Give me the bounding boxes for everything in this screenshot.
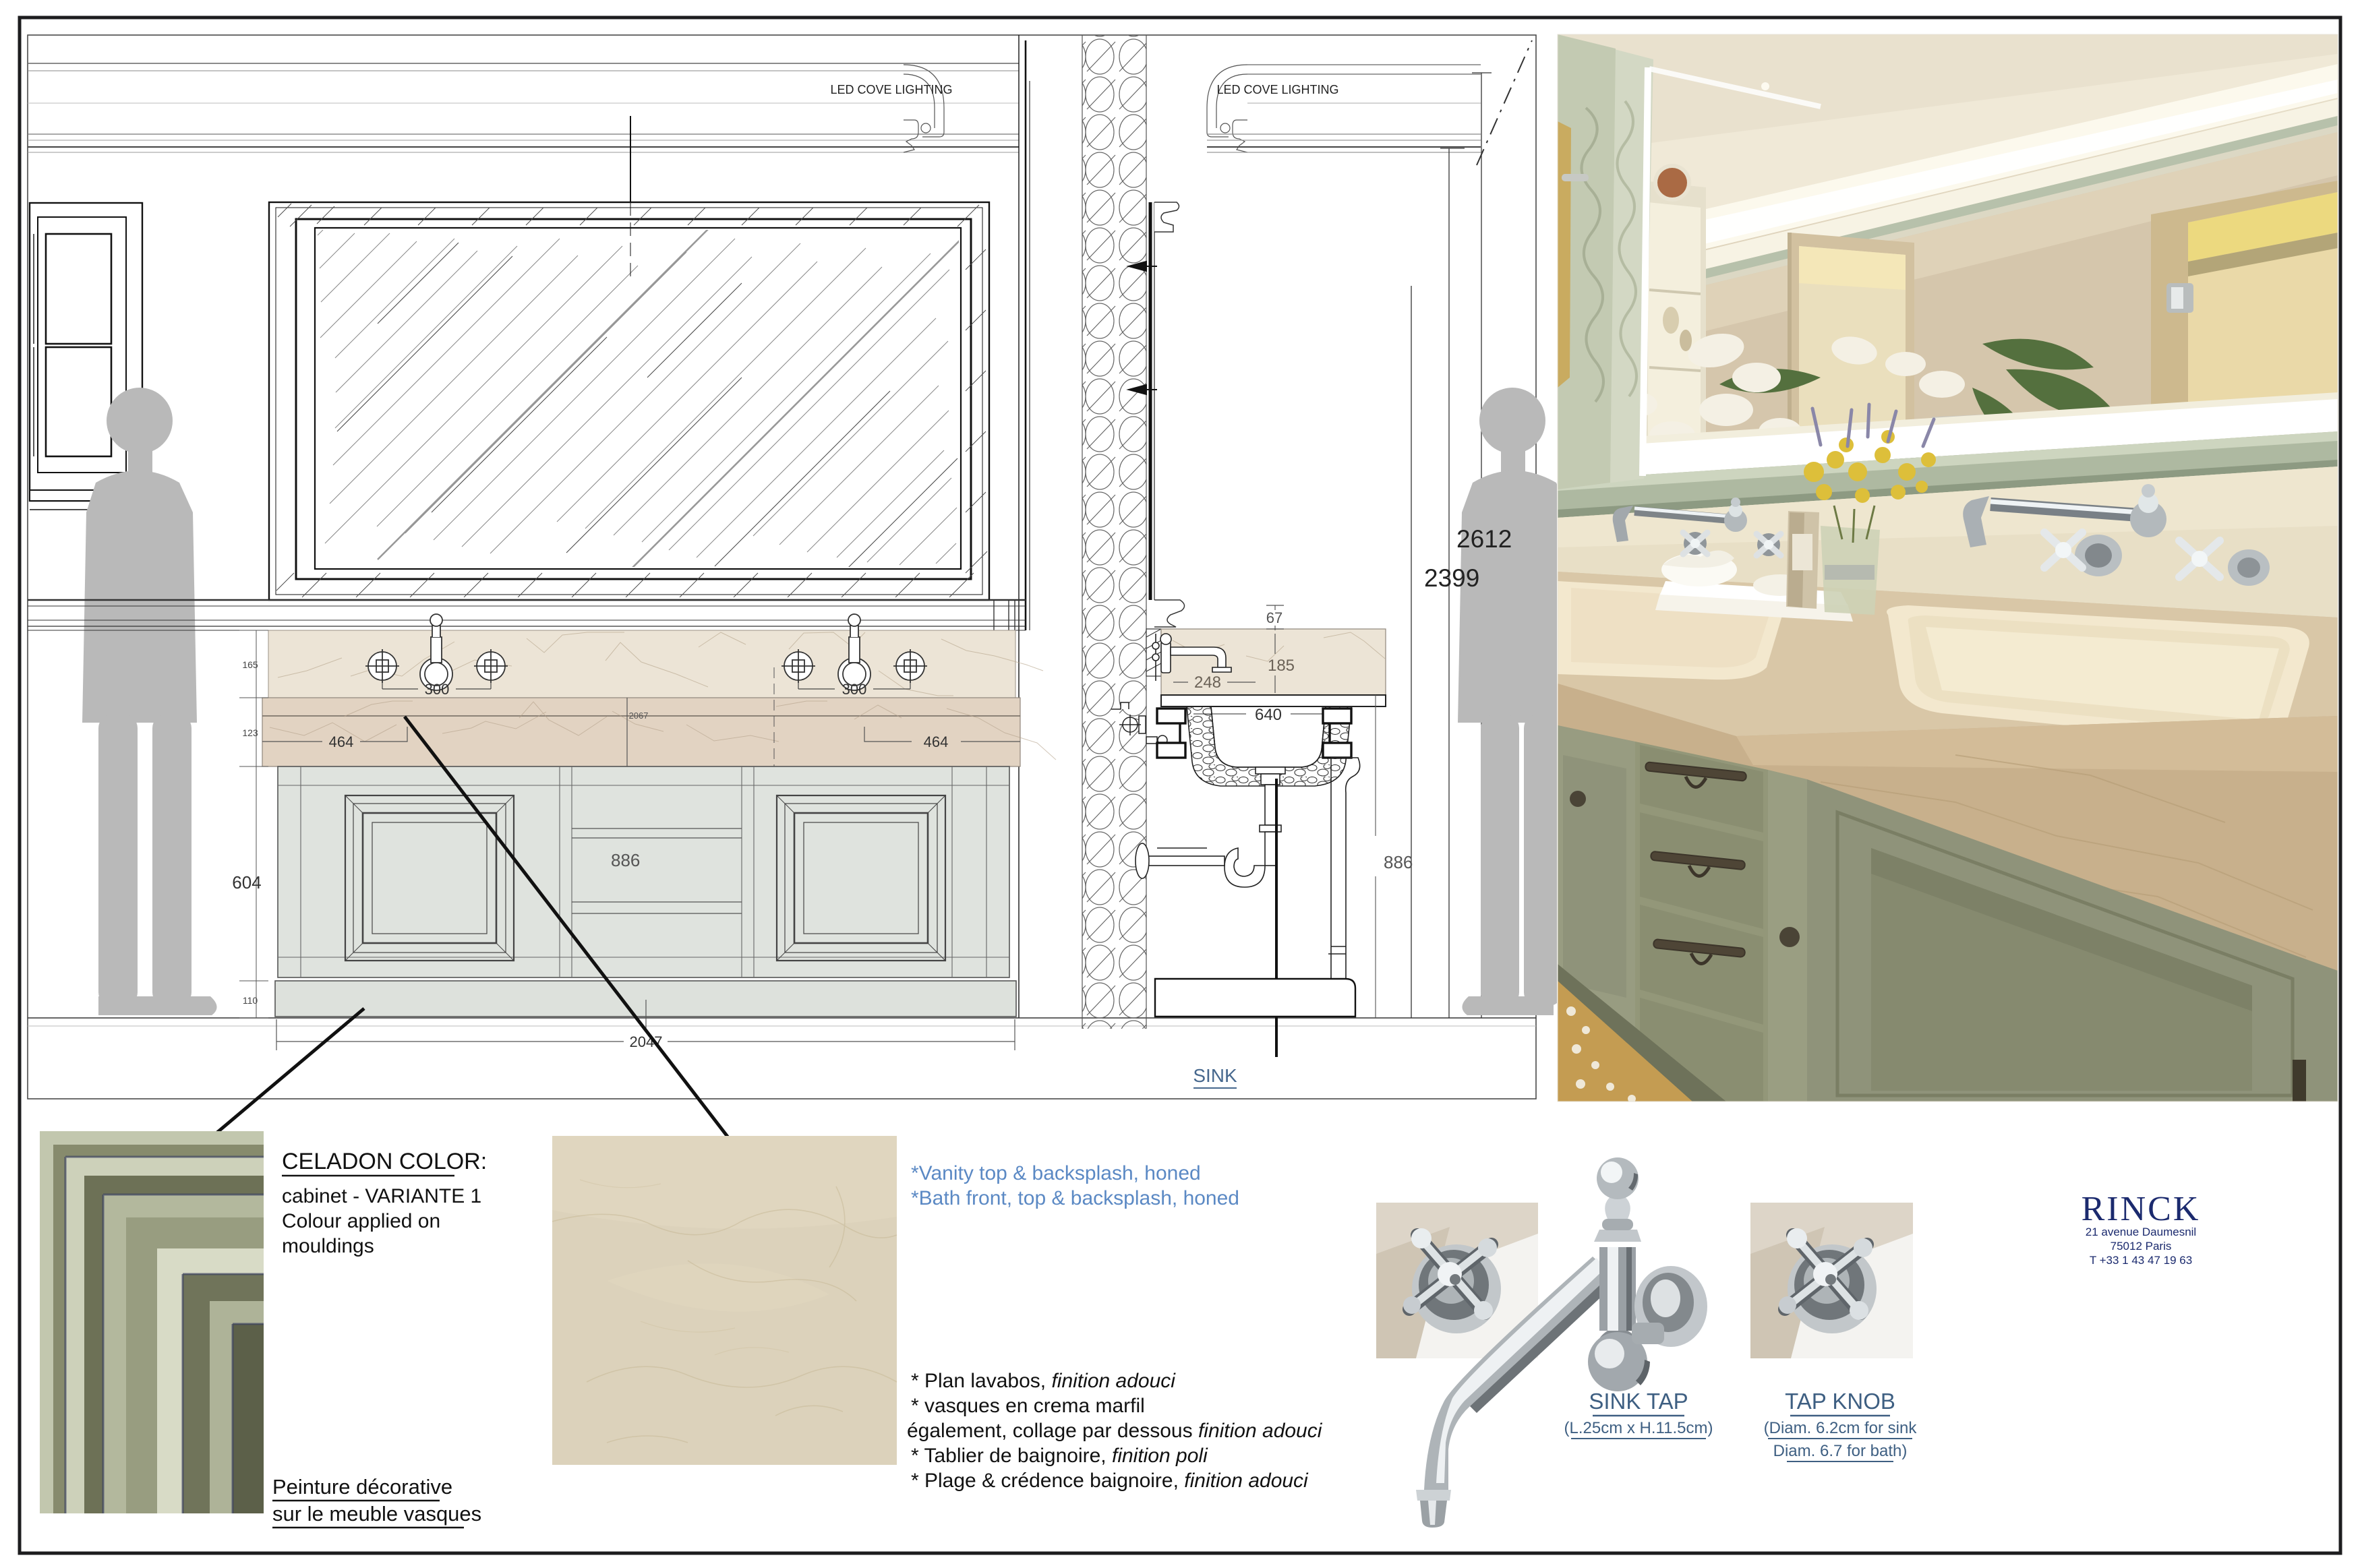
svg-text:886: 886: [1384, 852, 1413, 872]
svg-text:2612: 2612: [1456, 525, 1512, 553]
svg-text:(Diam. 6.2cm for sink: (Diam. 6.2cm for sink: [1764, 1419, 1918, 1437]
svg-text:67: 67: [1266, 609, 1282, 626]
svg-text:cabinet - VARIANTE 1: cabinet - VARIANTE 1: [282, 1185, 481, 1207]
svg-text:248: 248: [1194, 673, 1221, 692]
svg-text:également, collage par dessous: également, collage par dessous finition …: [907, 1420, 1323, 1442]
svg-text:300: 300: [425, 681, 450, 698]
svg-text:SINK: SINK: [1193, 1065, 1237, 1086]
svg-text:* vasques en crema marfil: * vasques en crema marfil: [911, 1395, 1145, 1417]
svg-text:604: 604: [232, 872, 261, 893]
svg-text:RINCK: RINCK: [2082, 1190, 2201, 1228]
svg-text:(L.25cm x H.11.5cm): (L.25cm x H.11.5cm): [1564, 1419, 1713, 1437]
svg-text:640: 640: [1255, 706, 1282, 724]
svg-text:300: 300: [842, 681, 867, 698]
svg-text:886: 886: [611, 850, 640, 870]
svg-text:SINK TAP: SINK TAP: [1589, 1389, 1688, 1414]
svg-text:464: 464: [924, 733, 949, 750]
svg-text:*Bath front, top & backsplash,: *Bath front, top & backsplash, honed: [911, 1187, 1239, 1209]
svg-text:TAP KNOB: TAP KNOB: [1785, 1389, 1895, 1414]
svg-text:mouldings: mouldings: [282, 1235, 374, 1257]
svg-text:21 avenue Daumesnil: 21 avenue Daumesnil: [2086, 1226, 2196, 1238]
svg-text:LED COVE LIGHTING: LED COVE LIGHTING: [1216, 83, 1338, 96]
svg-text:CELADON COLOR:: CELADON COLOR:: [282, 1149, 487, 1174]
svg-text:123: 123: [242, 727, 258, 738]
svg-text:464: 464: [329, 733, 354, 750]
svg-text:Peinture décorative: Peinture décorative: [272, 1475, 452, 1499]
svg-text:165: 165: [242, 659, 258, 670]
svg-text:Colour applied on: Colour applied on: [282, 1210, 440, 1232]
svg-text:* Plan lavabos, finition adouc: * Plan lavabos, finition adouci: [911, 1370, 1176, 1392]
svg-text:* Plage & crédence baignoire,: * Plage & crédence baignoire, finition a…: [911, 1470, 1309, 1492]
svg-text:* Tablier de baignoire, finiti: * Tablier de baignoire, finition poli: [911, 1445, 1208, 1467]
svg-text:2399: 2399: [1424, 564, 1479, 592]
svg-text:2067: 2067: [629, 711, 649, 721]
svg-text:LED COVE LIGHTING: LED COVE LIGHTING: [830, 83, 952, 96]
svg-text:75012 Paris: 75012 Paris: [2111, 1240, 2172, 1253]
svg-text:sur le meuble vasques: sur le meuble vasques: [272, 1502, 481, 1526]
svg-text:Diam. 6.7 for bath): Diam. 6.7 for bath): [1773, 1442, 1908, 1460]
svg-text:T +33 1 43 47 19 63: T +33 1 43 47 19 63: [2090, 1254, 2192, 1267]
svg-text:185: 185: [1268, 657, 1295, 675]
svg-text:110: 110: [243, 995, 258, 1006]
svg-text:*Vanity top & backsplash, hone: *Vanity top & backsplash, honed: [911, 1162, 1201, 1184]
